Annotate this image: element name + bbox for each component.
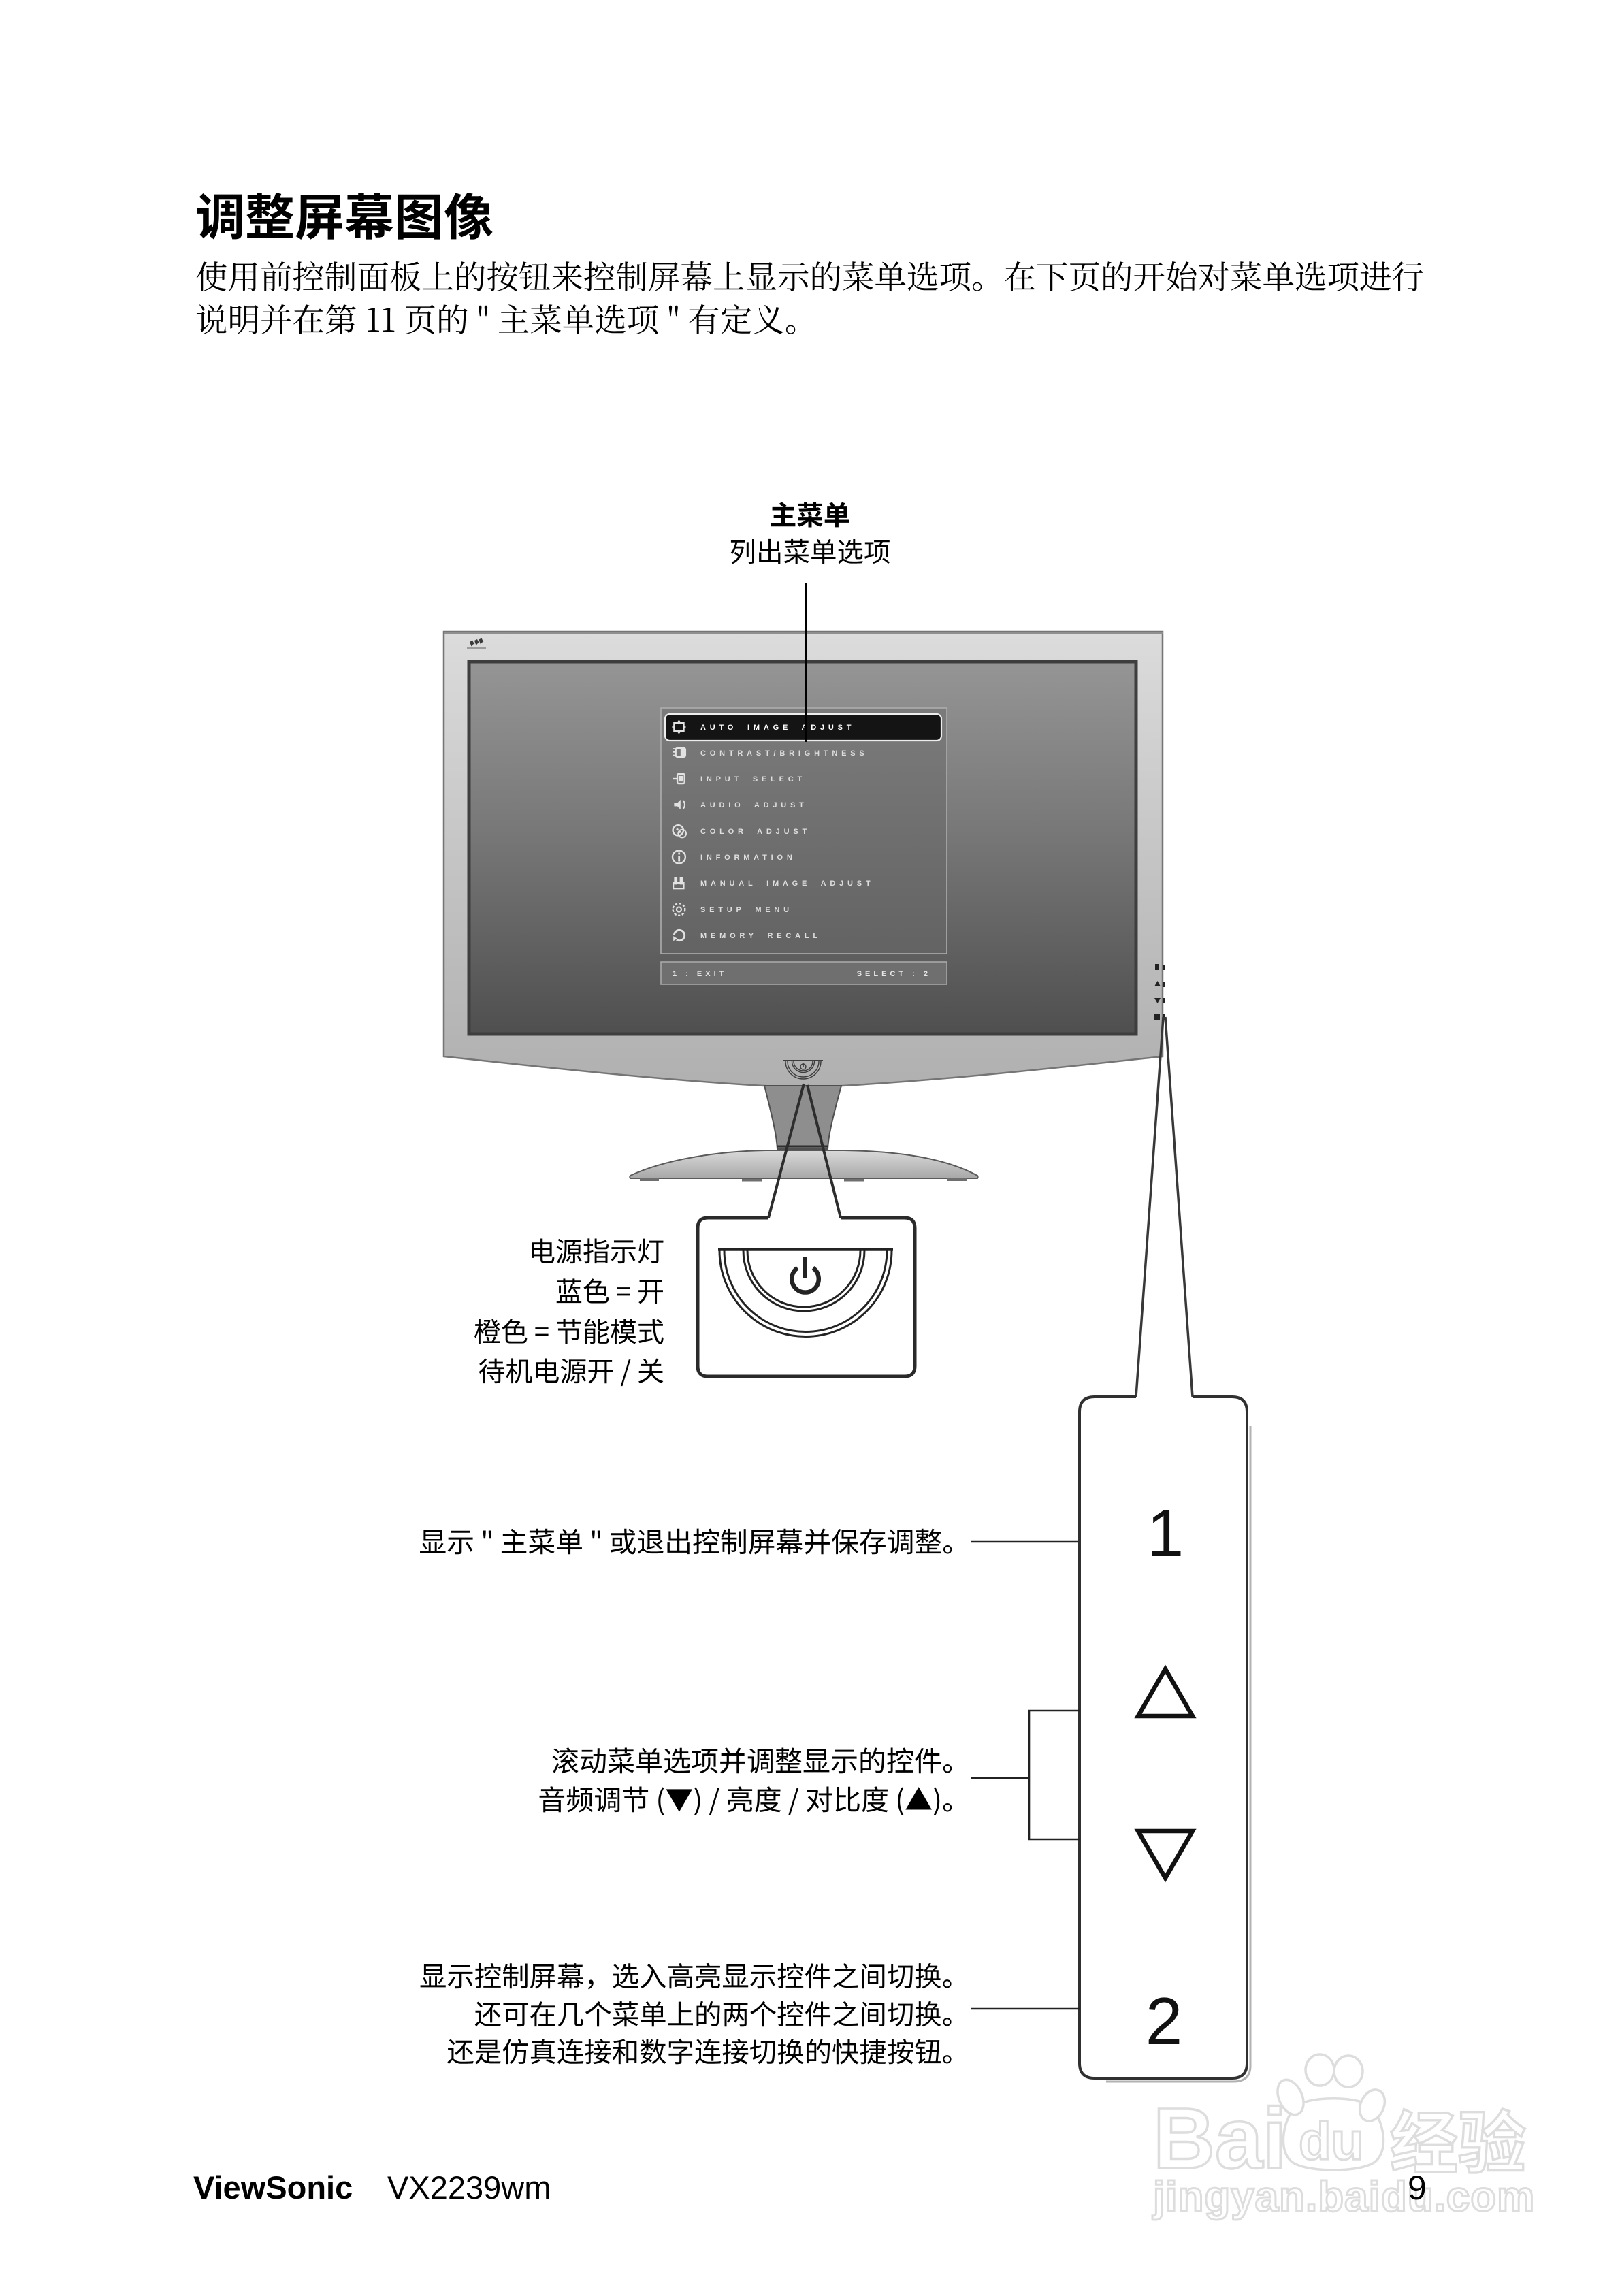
svg-text:1: 1 — [1147, 1495, 1184, 1570]
svg-text:SELECT : 2: SELECT : 2 — [857, 970, 931, 978]
svg-text:COLOR ADJUST: COLOR ADJUST — [700, 828, 811, 836]
svg-text:SETUP MENU: SETUP MENU — [700, 906, 793, 914]
svg-text:jingyan.baidu.com: jingyan.baidu.com — [1152, 2173, 1535, 2220]
svg-text:MEMORY RECALL: MEMORY RECALL — [700, 932, 822, 940]
svg-text:ViewSonic: ViewSonic — [193, 2169, 353, 2205]
svg-text:CONTRAST/BRIGHTNESS: CONTRAST/BRIGHTNESS — [700, 749, 868, 758]
svg-text:INFORMATION: INFORMATION — [700, 854, 796, 862]
svg-text:9: 9 — [1408, 2169, 1427, 2207]
svg-text:Bai: Bai — [1153, 2090, 1286, 2186]
svg-text:2: 2 — [1146, 1984, 1183, 2058]
svg-text:MANUAL IMAGE ADJUST: MANUAL IMAGE ADJUST — [700, 879, 874, 888]
svg-text:1 : EXIT: 1 : EXIT — [673, 970, 727, 978]
svg-text:INPUT SELECT: INPUT SELECT — [700, 775, 806, 783]
svg-text:VX2239wm: VX2239wm — [387, 2169, 551, 2205]
svg-text:AUDIO ADJUST: AUDIO ADJUST — [700, 801, 808, 809]
svg-text:AUTO IMAGE ADJUST: AUTO IMAGE ADJUST — [700, 724, 855, 732]
svg-text:du: du — [1299, 2111, 1363, 2171]
